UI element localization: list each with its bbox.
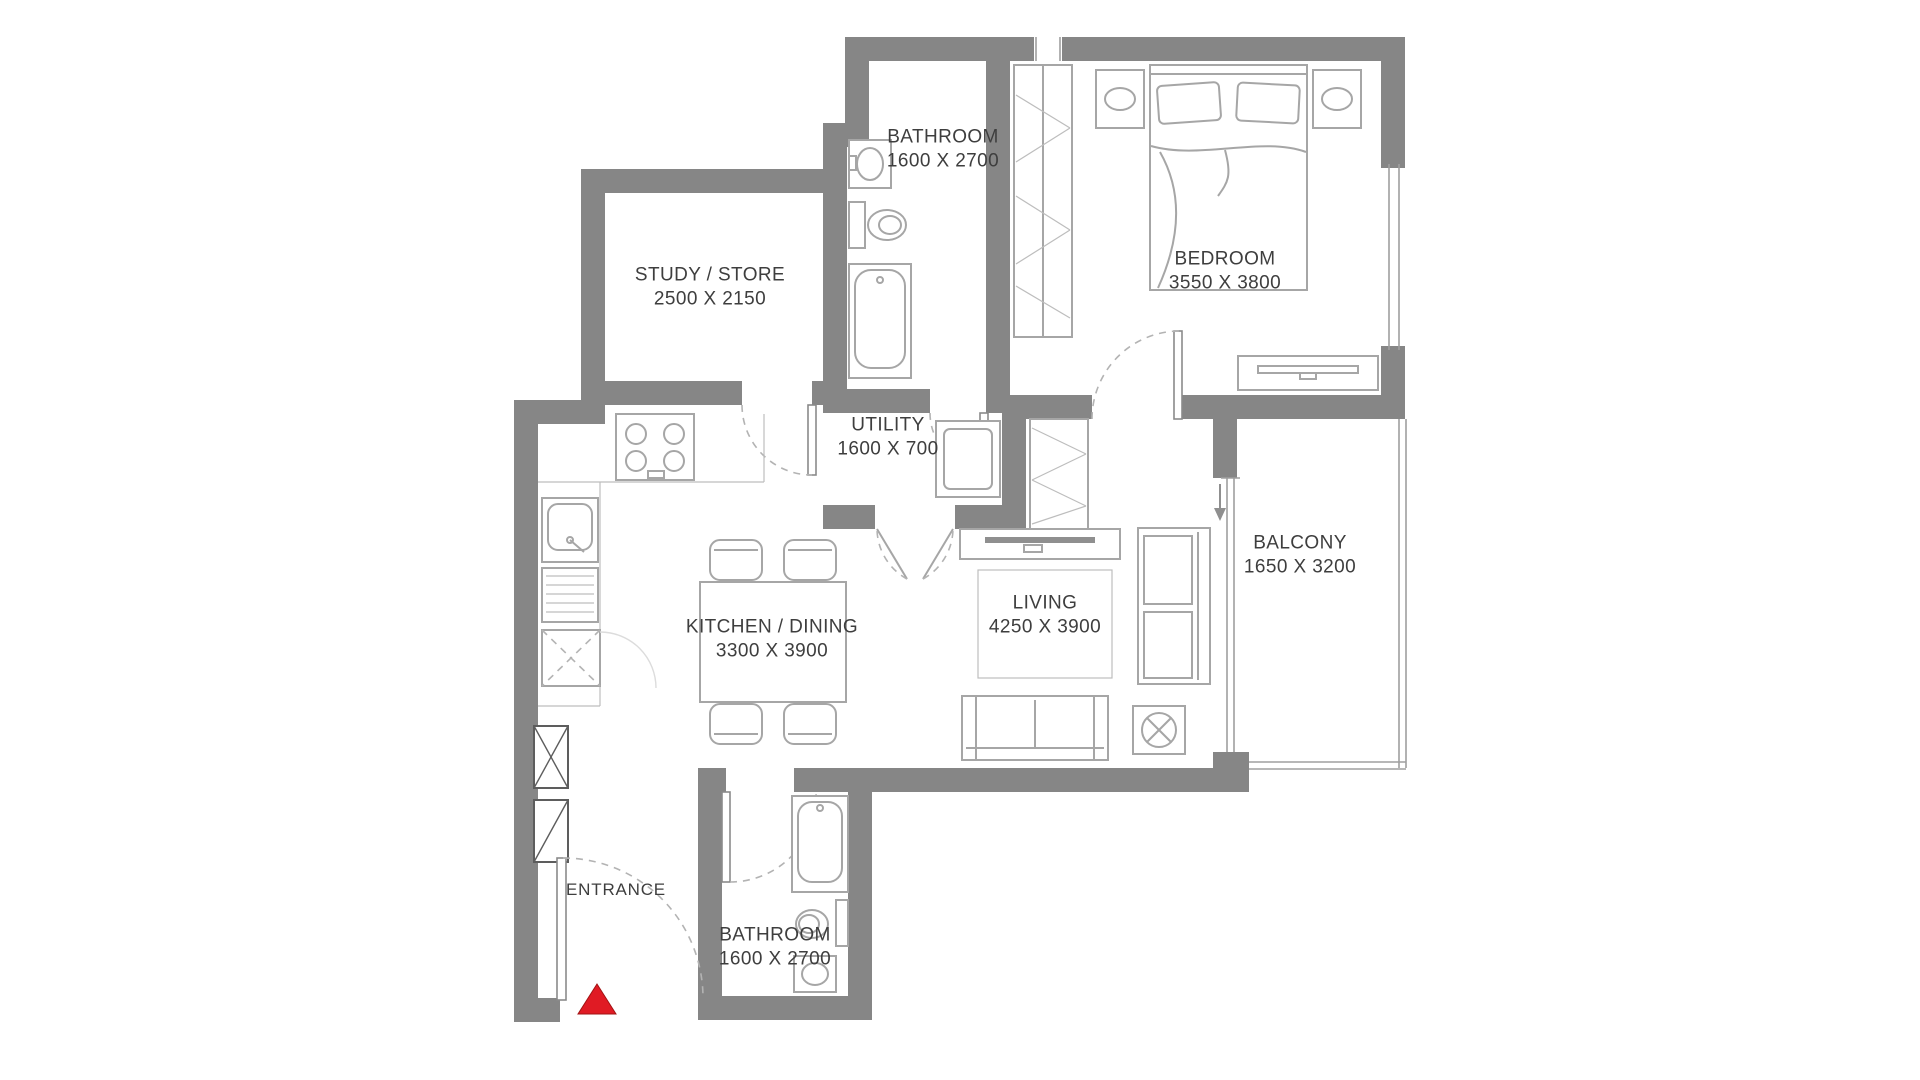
room-label-bathroom-bottom: BATHROOM 1600 X 2700 [719, 924, 831, 973]
room-name: BATHROOM [887, 126, 999, 150]
room-label-living: LIVING 4250 X 3900 [989, 592, 1101, 641]
room-name: BALCONY [1244, 532, 1356, 556]
bathtub-top-icon [849, 264, 911, 378]
room-label-balcony: BALCONY 1650 X 3200 [1244, 532, 1356, 581]
balcony-glazing [1221, 478, 1240, 752]
room-dims: 1600 X 2700 [719, 948, 831, 972]
nightstand-left-icon [1096, 70, 1144, 128]
room-name: BEDROOM [1169, 248, 1281, 272]
toilet-top-icon [849, 202, 906, 248]
sofa-horizontal-icon [962, 696, 1108, 760]
room-name: LIVING [989, 592, 1101, 616]
door-bedroom [1092, 331, 1182, 419]
shaft-box-lower [534, 800, 568, 862]
bedroom-window [1381, 162, 1405, 352]
balcony-railing [1249, 419, 1406, 769]
room-dims: 1600 X 2700 [887, 150, 999, 174]
appliance-icon [542, 630, 656, 688]
room-label-bathroom-top: BATHROOM 1600 X 2700 [887, 126, 999, 175]
sink-icon [542, 498, 598, 562]
room-label-study: STUDY / STORE 2500 X 2150 [635, 264, 785, 313]
entrance-marker-icon [578, 984, 616, 1014]
nightstand-right-icon [1313, 70, 1361, 128]
dresser-icon [1238, 356, 1378, 390]
door-study [742, 405, 816, 475]
tv-console-icon [960, 529, 1120, 559]
room-dims: 2500 X 2150 [635, 288, 785, 312]
room-label-kitchen-dining: KITCHEN / DINING 3300 X 3900 [686, 616, 858, 665]
room-name: UTILITY [837, 414, 938, 438]
room-name: STUDY / STORE [635, 264, 785, 288]
bathtub-bottom-icon [792, 796, 848, 892]
balcony-entry-arrow-icon [1214, 484, 1226, 521]
shaft-box-upper [534, 726, 568, 788]
room-dims: 1600 X 700 [837, 438, 938, 462]
door-utility-double [877, 529, 953, 579]
room-name: BATHROOM [719, 924, 831, 948]
wall-notch [1034, 37, 1062, 61]
room-dims: 3300 X 3900 [686, 640, 858, 664]
floor-plan-canvas: BATHROOM 1600 X 2700 STUDY / STORE 2500 … [0, 0, 1920, 1080]
basin-top-icon [849, 140, 891, 188]
room-name: KITCHEN / DINING [686, 616, 858, 640]
room-dims: 4250 X 3900 [989, 616, 1101, 640]
room-label-bedroom: BEDROOM 3550 X 3800 [1169, 248, 1281, 297]
drainboard-icon [542, 568, 598, 622]
wardrobe-hall-icon [1030, 419, 1088, 529]
wardrobe-bedroom-icon [1014, 65, 1072, 337]
room-name: ENTRANCE [566, 879, 666, 901]
stove-icon [616, 414, 694, 480]
room-label-utility: UTILITY 1600 X 700 [837, 414, 938, 463]
washing-machine-icon [936, 421, 1000, 497]
room-label-entrance: ENTRANCE [566, 879, 666, 901]
room-dims: 3550 X 3800 [1169, 272, 1281, 296]
sofa-vertical-icon [1138, 528, 1210, 684]
plant-table-icon [1133, 706, 1185, 754]
room-dims: 1650 X 3200 [1244, 556, 1356, 580]
